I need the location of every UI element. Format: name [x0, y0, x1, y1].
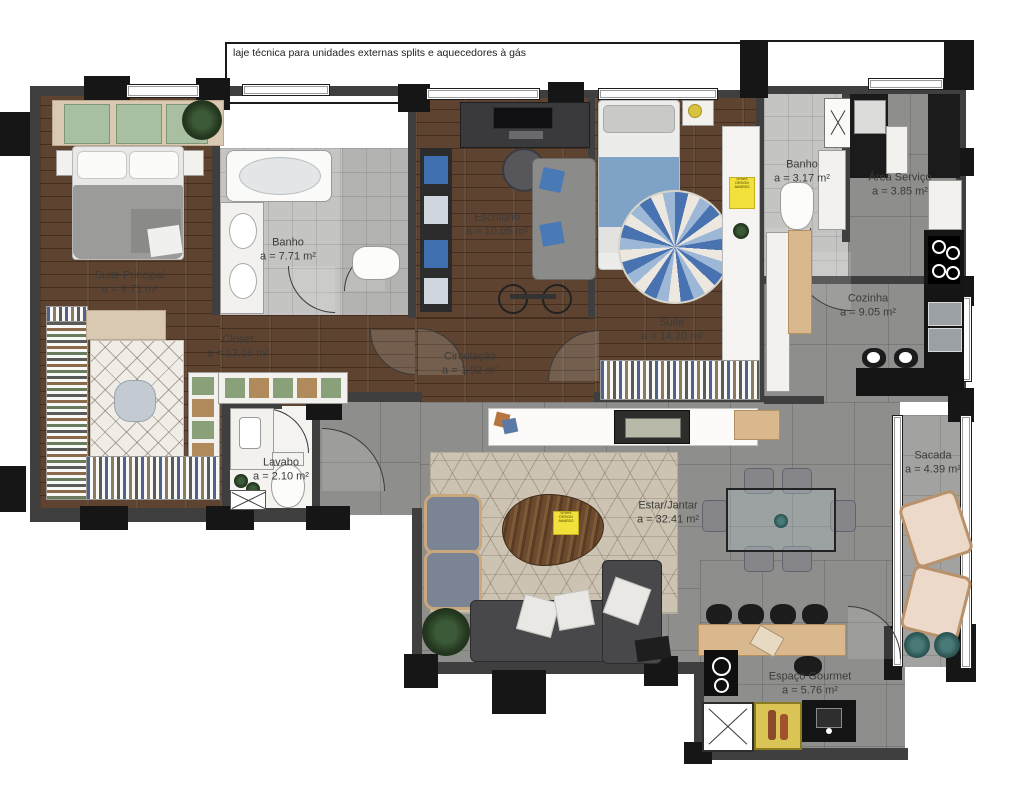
room-label-circulacao: Circulação a = 1.92 m² [442, 350, 498, 378]
shower-panel [824, 98, 852, 148]
folded-clothes [192, 399, 214, 417]
spark-badge: SPARK DESIGN AWARDS [553, 511, 579, 535]
laundry-counter [928, 94, 960, 178]
skewer [768, 710, 776, 740]
wall-segment [764, 396, 824, 404]
bar-stool [802, 604, 828, 626]
burner [714, 678, 729, 693]
bicycle-frame [510, 294, 556, 299]
bathtub-basin [239, 157, 321, 195]
cushion [116, 104, 162, 144]
bar-stool [894, 348, 918, 368]
folded-clothes [225, 378, 245, 398]
pillow [77, 151, 127, 179]
stool-seat [867, 352, 880, 363]
bookshelf [420, 148, 452, 312]
monitor [493, 107, 553, 129]
faucet [826, 728, 832, 734]
bar-stool [738, 604, 764, 626]
desk [460, 102, 590, 148]
bathtub [226, 150, 332, 202]
kitchen-sink [928, 328, 962, 352]
room-label-escritorio: Escritório a = 10.05 m² [466, 211, 528, 239]
bicycle-wheel [542, 284, 572, 314]
shelf-books [46, 306, 88, 322]
books [424, 156, 448, 184]
gourmet-cooktop [704, 650, 738, 696]
sink-basin [229, 213, 257, 249]
plant [422, 608, 470, 656]
skewer [780, 714, 788, 740]
window [426, 88, 540, 100]
pillow [603, 105, 675, 133]
grill-tray [754, 702, 802, 750]
room-label-estar-jantar: Estar/Jantar a = 32.41 m² [637, 499, 699, 527]
folded-clothes [297, 378, 317, 398]
books [424, 278, 448, 304]
round-rug [618, 190, 732, 304]
console-wood-box [734, 410, 780, 440]
dining-chair [702, 500, 728, 532]
folded-clothes [192, 421, 214, 439]
cushion-dark [635, 636, 672, 663]
folded-clothes-shelf [218, 372, 348, 404]
armchair [424, 494, 482, 554]
kitchen-peninsula [856, 368, 926, 396]
spark-badge: SPARK DESIGN AWARDS [729, 177, 755, 209]
column [0, 112, 30, 156]
toilet [352, 246, 400, 280]
folded-clothes [273, 378, 293, 398]
pillow [539, 221, 564, 246]
bicycle-wheel [498, 284, 528, 314]
sofa-escritorio [532, 158, 596, 280]
floor-plan: laje técnica para unidades externas spli… [0, 0, 1024, 792]
double-vanity [220, 202, 264, 314]
entry-mat [614, 410, 690, 444]
pillow [539, 167, 565, 193]
sink-basin [239, 417, 261, 449]
pillow [129, 151, 179, 179]
burner [932, 264, 946, 278]
room-label-closet: Closet a = 13.16 m² [207, 333, 269, 361]
folded-clothes-column [188, 372, 220, 466]
folded-clothes [249, 378, 269, 398]
wall-segment [30, 86, 40, 518]
books [424, 240, 448, 268]
sink-basin [816, 708, 842, 728]
lamp [688, 104, 702, 118]
window [598, 88, 718, 100]
burner [946, 246, 960, 260]
folded-clothes [192, 377, 214, 395]
wardrobe: SPARK DESIGN AWARDS [722, 126, 760, 374]
wall-segment [222, 403, 230, 515]
bicycle [496, 280, 572, 314]
window [868, 78, 944, 90]
laundry-counter [850, 94, 888, 178]
bed-blanket-fold [147, 225, 183, 257]
room-label-sacada: Sacada a = 4.39 m² [905, 449, 961, 477]
room-label-espaco-gourmet: Espaço Gourmet a = 5.76 m² [769, 670, 852, 698]
room-label-suite-principal: Suite Principal a = 9.71 m² [95, 269, 165, 297]
table-centerpiece [774, 514, 788, 528]
hanging-clothes-rack [86, 456, 220, 500]
column [306, 506, 350, 530]
room-label-banho-suite: Banho a = 7.71 m² [260, 236, 316, 264]
column [740, 40, 768, 98]
pantry-cabinet [788, 230, 812, 334]
room-label-suite: Suite a = 14.20 m² [641, 316, 703, 344]
column [944, 40, 974, 90]
bath-mat [230, 490, 266, 510]
wall-segment [30, 508, 325, 522]
toilet [780, 182, 814, 230]
plant [934, 632, 960, 658]
double-bed [72, 146, 184, 260]
washing-machine [854, 100, 886, 134]
entry-mat-inner [625, 418, 681, 438]
hanging-clothes-rack [46, 320, 88, 500]
column [0, 466, 26, 512]
laundry-cabinet [928, 180, 962, 230]
plant [733, 223, 749, 239]
bar-stool [706, 604, 732, 626]
clothes-rack [600, 360, 760, 400]
closet-shelf [86, 310, 166, 340]
sink-basin [229, 263, 257, 299]
room-label-area-servico: Área Serviço a = 3.85 m² [869, 171, 932, 199]
kitchen-sink [928, 302, 962, 326]
wall-segment [408, 98, 416, 318]
column [404, 654, 438, 688]
bar-stool [862, 348, 886, 368]
keyboard [509, 131, 543, 139]
cushion [553, 589, 595, 631]
burner [932, 240, 946, 254]
dining-table [726, 488, 836, 552]
gourmet-sink-counter [802, 700, 856, 742]
cooktop [928, 236, 960, 284]
burner [946, 266, 960, 280]
window [242, 84, 330, 96]
window [126, 84, 200, 98]
decor-books [502, 418, 519, 435]
bar-stool [770, 604, 796, 626]
wall-segment [412, 508, 422, 670]
stool-seat [899, 352, 912, 363]
fridge-cabinet [766, 232, 790, 392]
kitchen-counter [924, 230, 964, 396]
cutting-board [749, 624, 784, 657]
sacada-glass-wall [892, 415, 903, 667]
pouf [114, 380, 156, 422]
technical-slab-note: laje técnica para unidades externas spli… [233, 47, 526, 59]
plant [904, 632, 930, 658]
room-label-banho: Banho a = 3.17 m² [774, 158, 830, 186]
entry-block [492, 670, 546, 714]
room-label-lavabo: Lavabo a = 2.10 m² [253, 456, 309, 484]
room-label-cozinha: Cozinha a = 9.05 m² [840, 292, 896, 320]
plant [182, 100, 222, 140]
books [424, 196, 448, 224]
folding-table [702, 702, 754, 752]
burner [712, 657, 731, 676]
cushion [64, 104, 110, 144]
column [80, 506, 128, 530]
ironing-board [886, 126, 908, 174]
folded-clothes [321, 378, 341, 398]
